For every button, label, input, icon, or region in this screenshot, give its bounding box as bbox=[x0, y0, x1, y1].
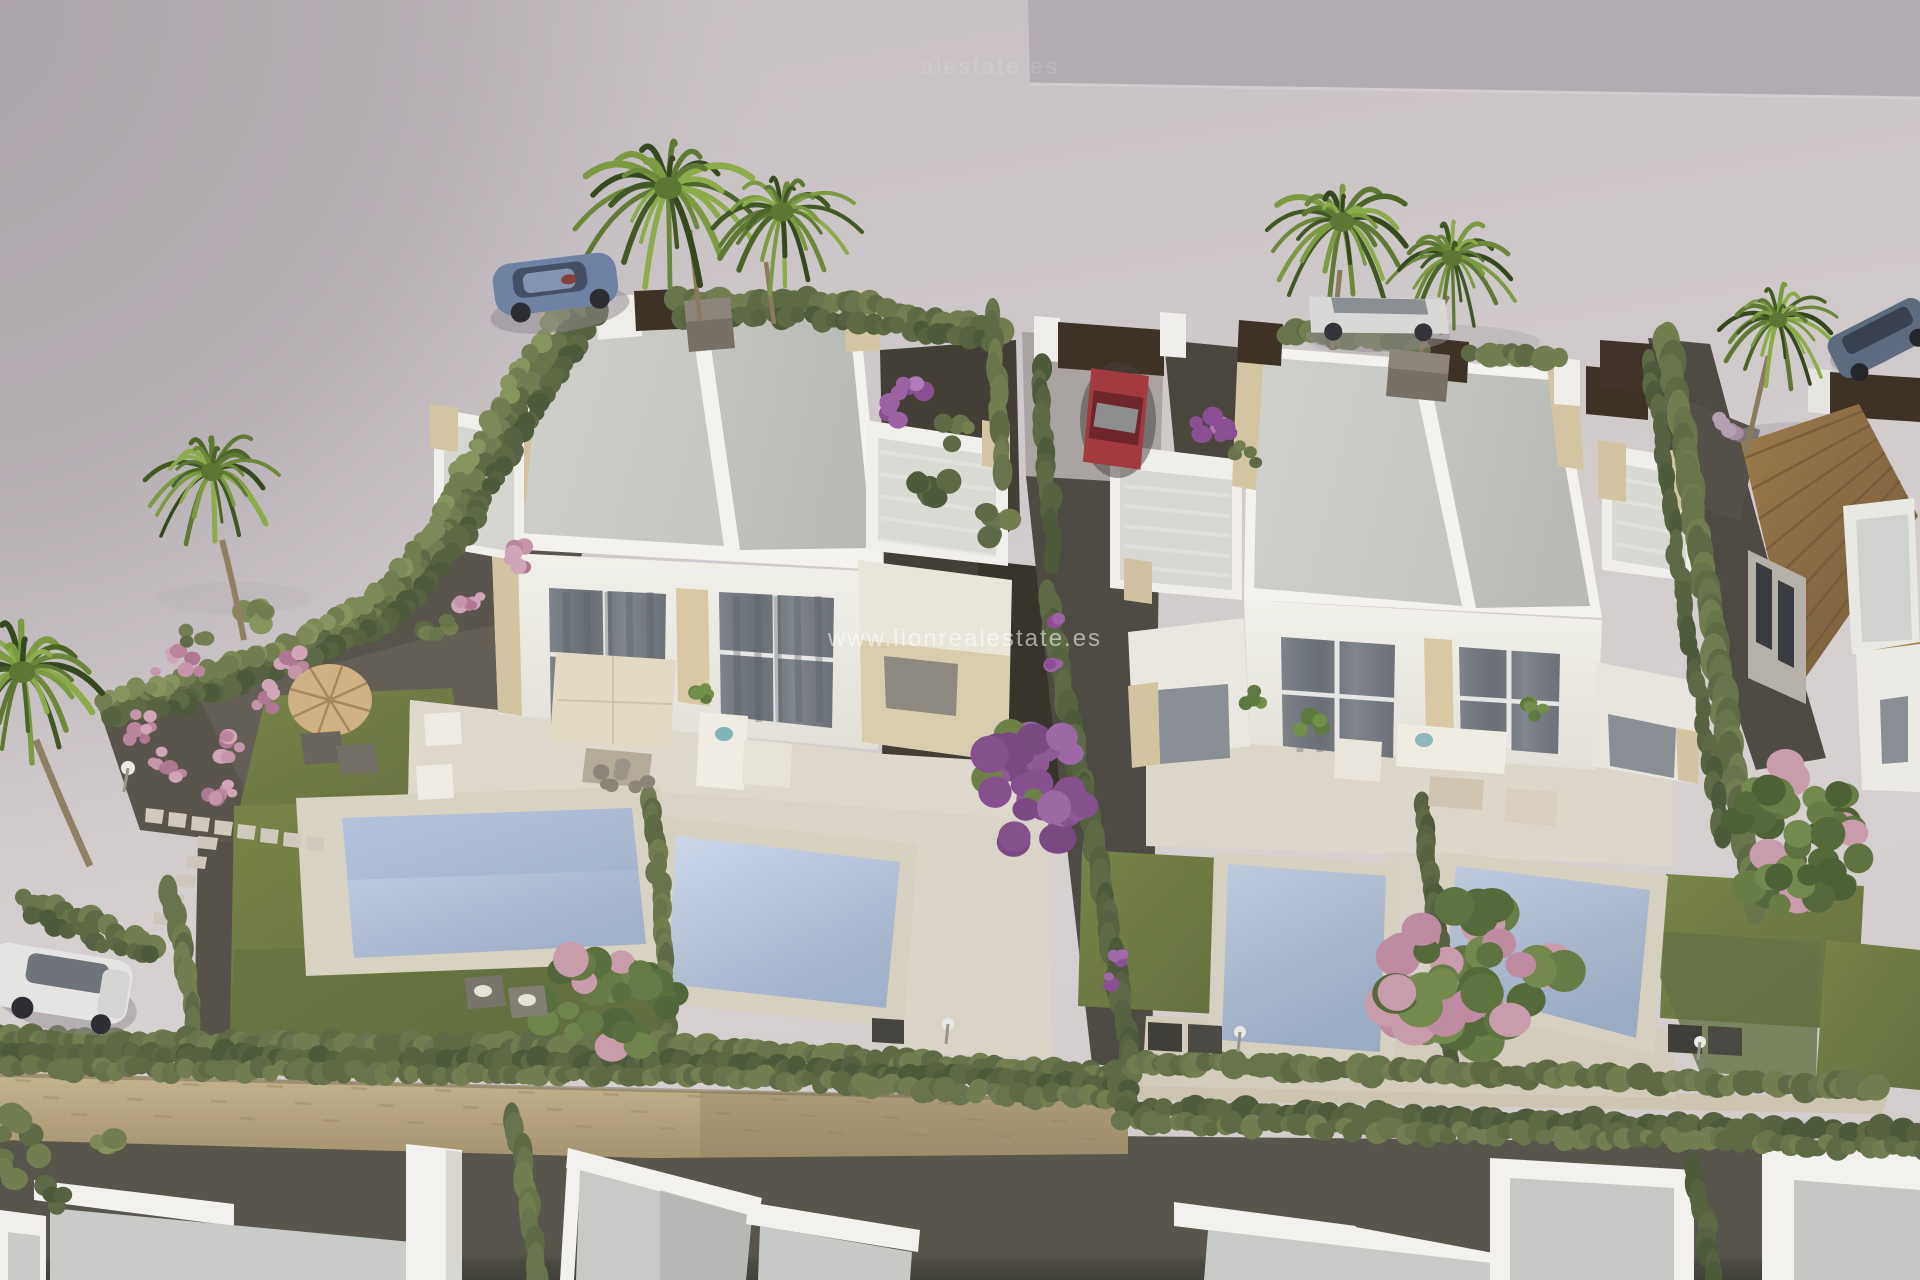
svg-text:alestate.es: alestate.es bbox=[921, 53, 1060, 79]
svg-text:www.lionrealestate.es: www.lionrealestate.es bbox=[827, 625, 1102, 652]
